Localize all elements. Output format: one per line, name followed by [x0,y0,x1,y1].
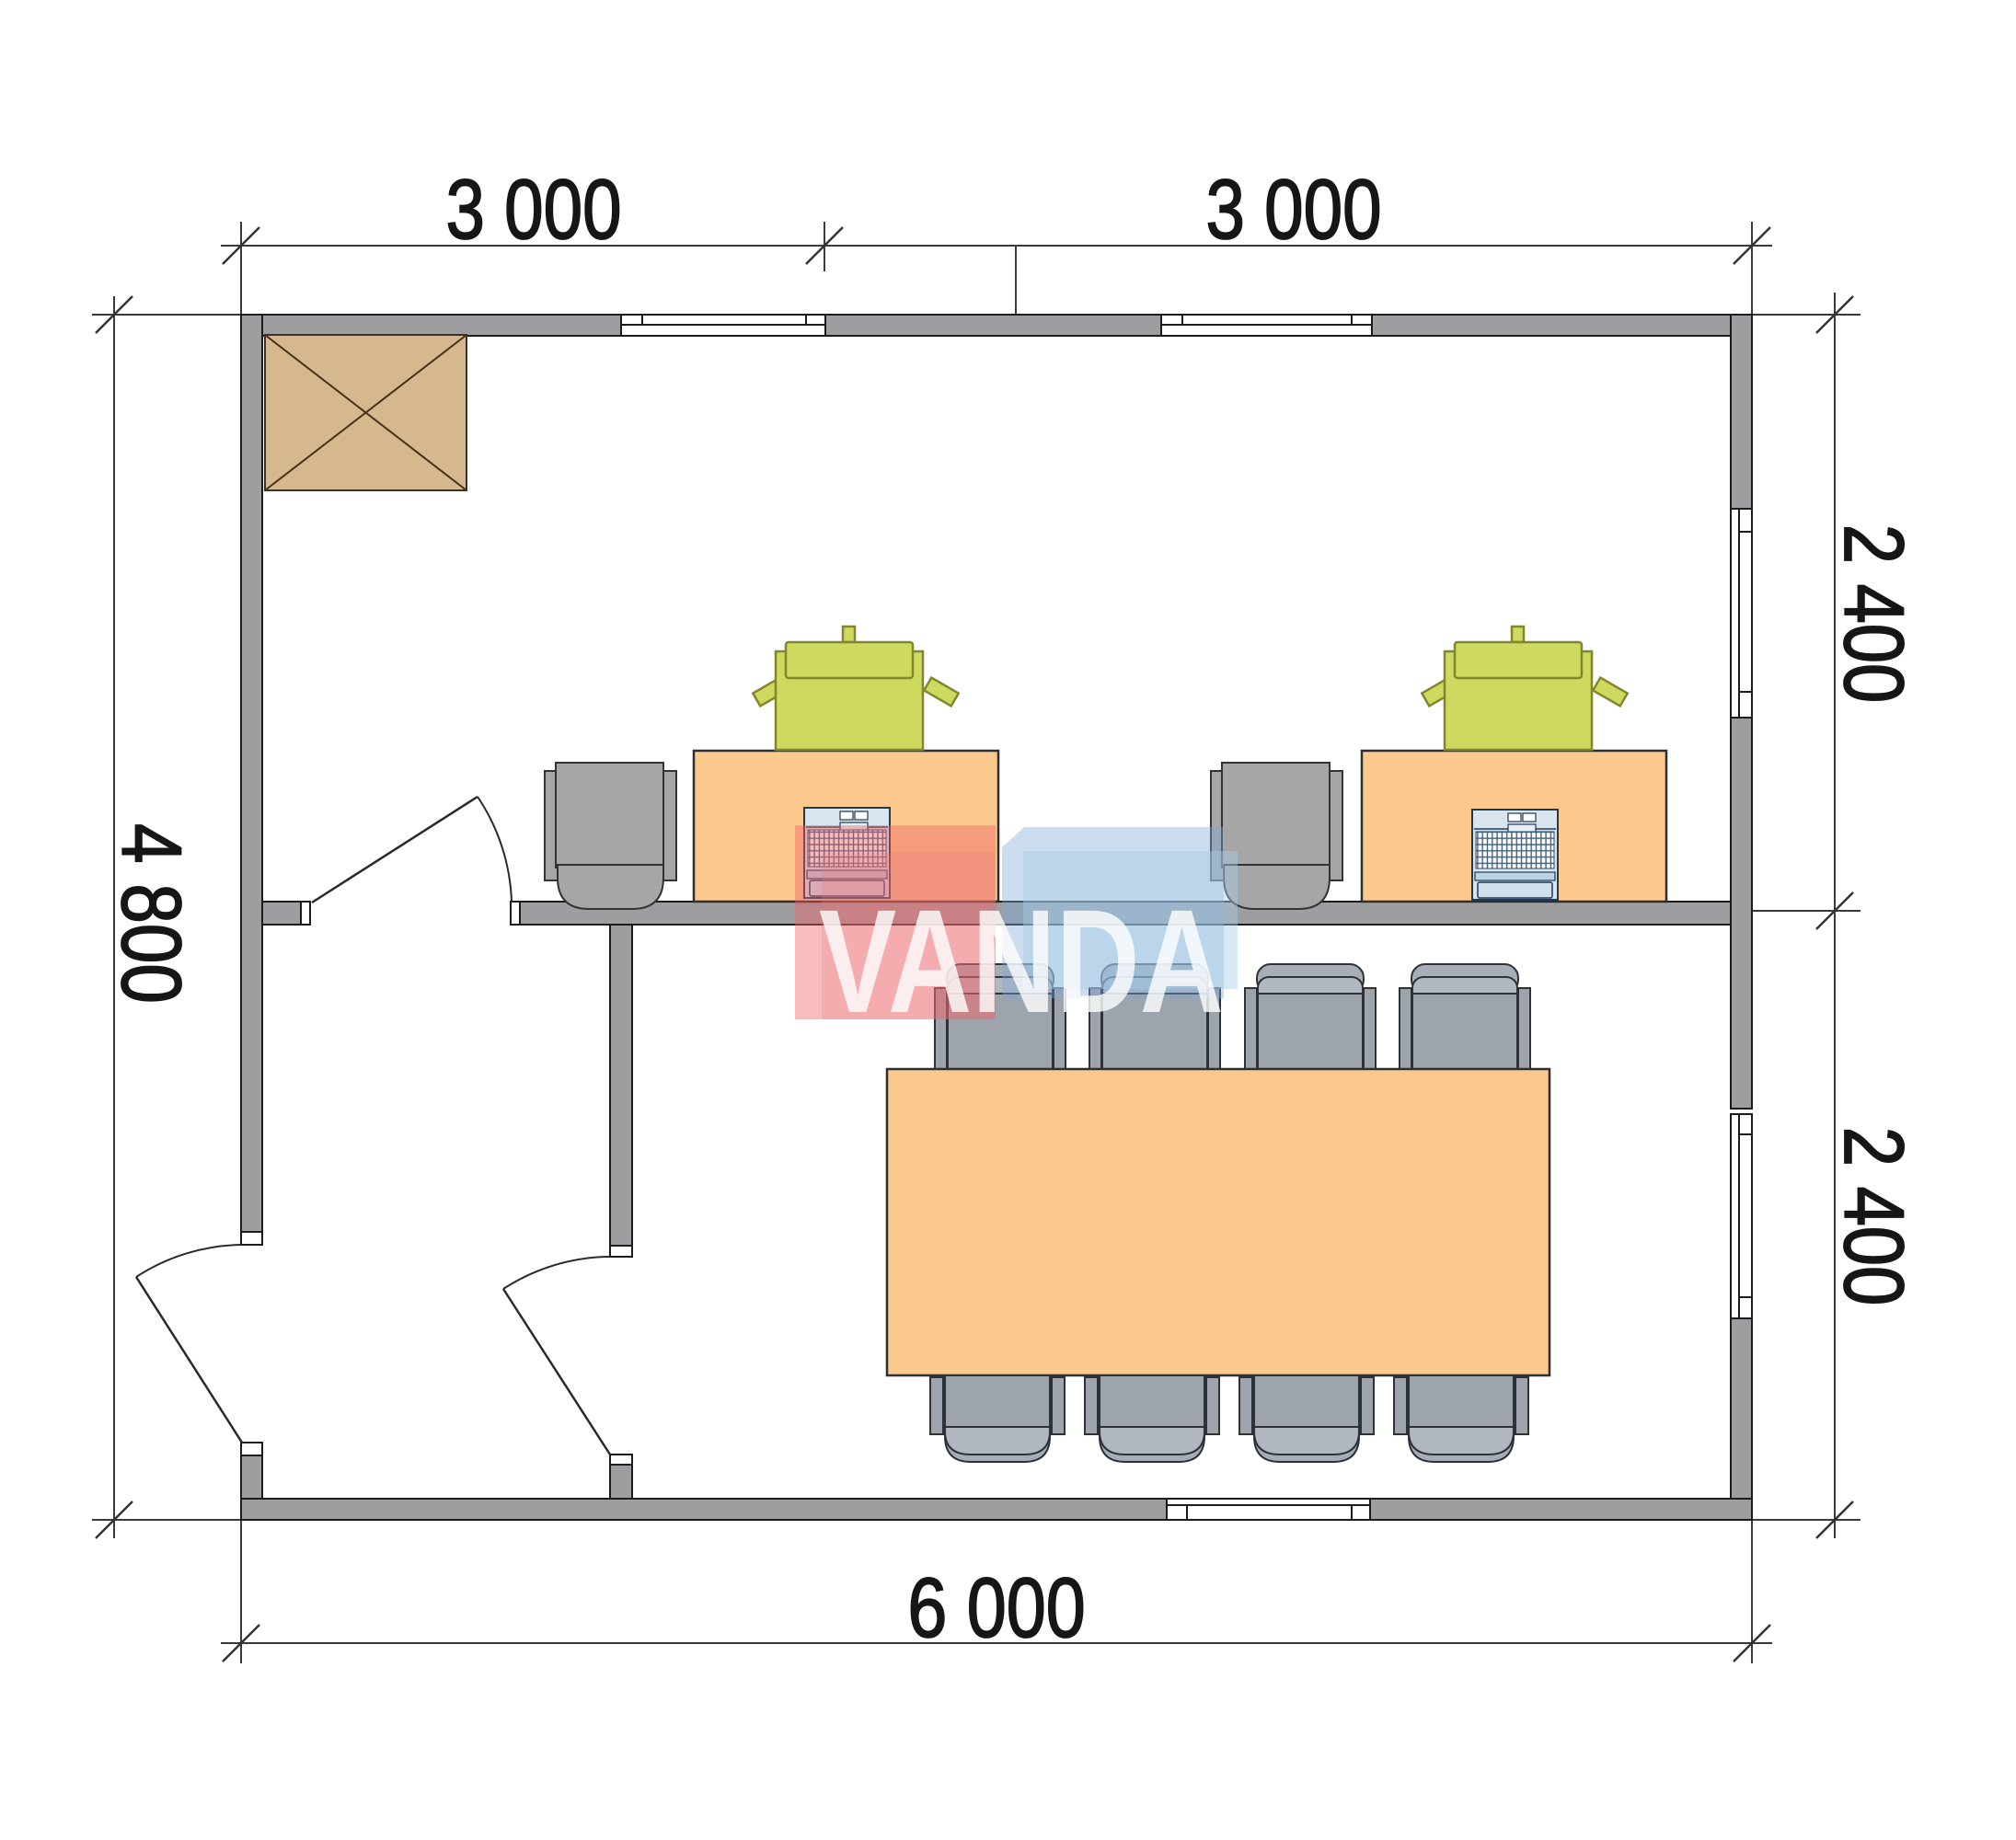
svg-text:6 000: 6 000 [907,1561,1085,1656]
svg-text:2 400: 2 400 [1826,524,1920,704]
svg-text:3 000: 3 000 [445,161,621,256]
svg-text:4 800: 4 800 [104,823,198,1004]
svg-text:2 400: 2 400 [1826,1127,1920,1306]
svg-text:3 000: 3 000 [1205,161,1381,256]
svg-text:VANDA: VANDA [819,879,1224,1044]
